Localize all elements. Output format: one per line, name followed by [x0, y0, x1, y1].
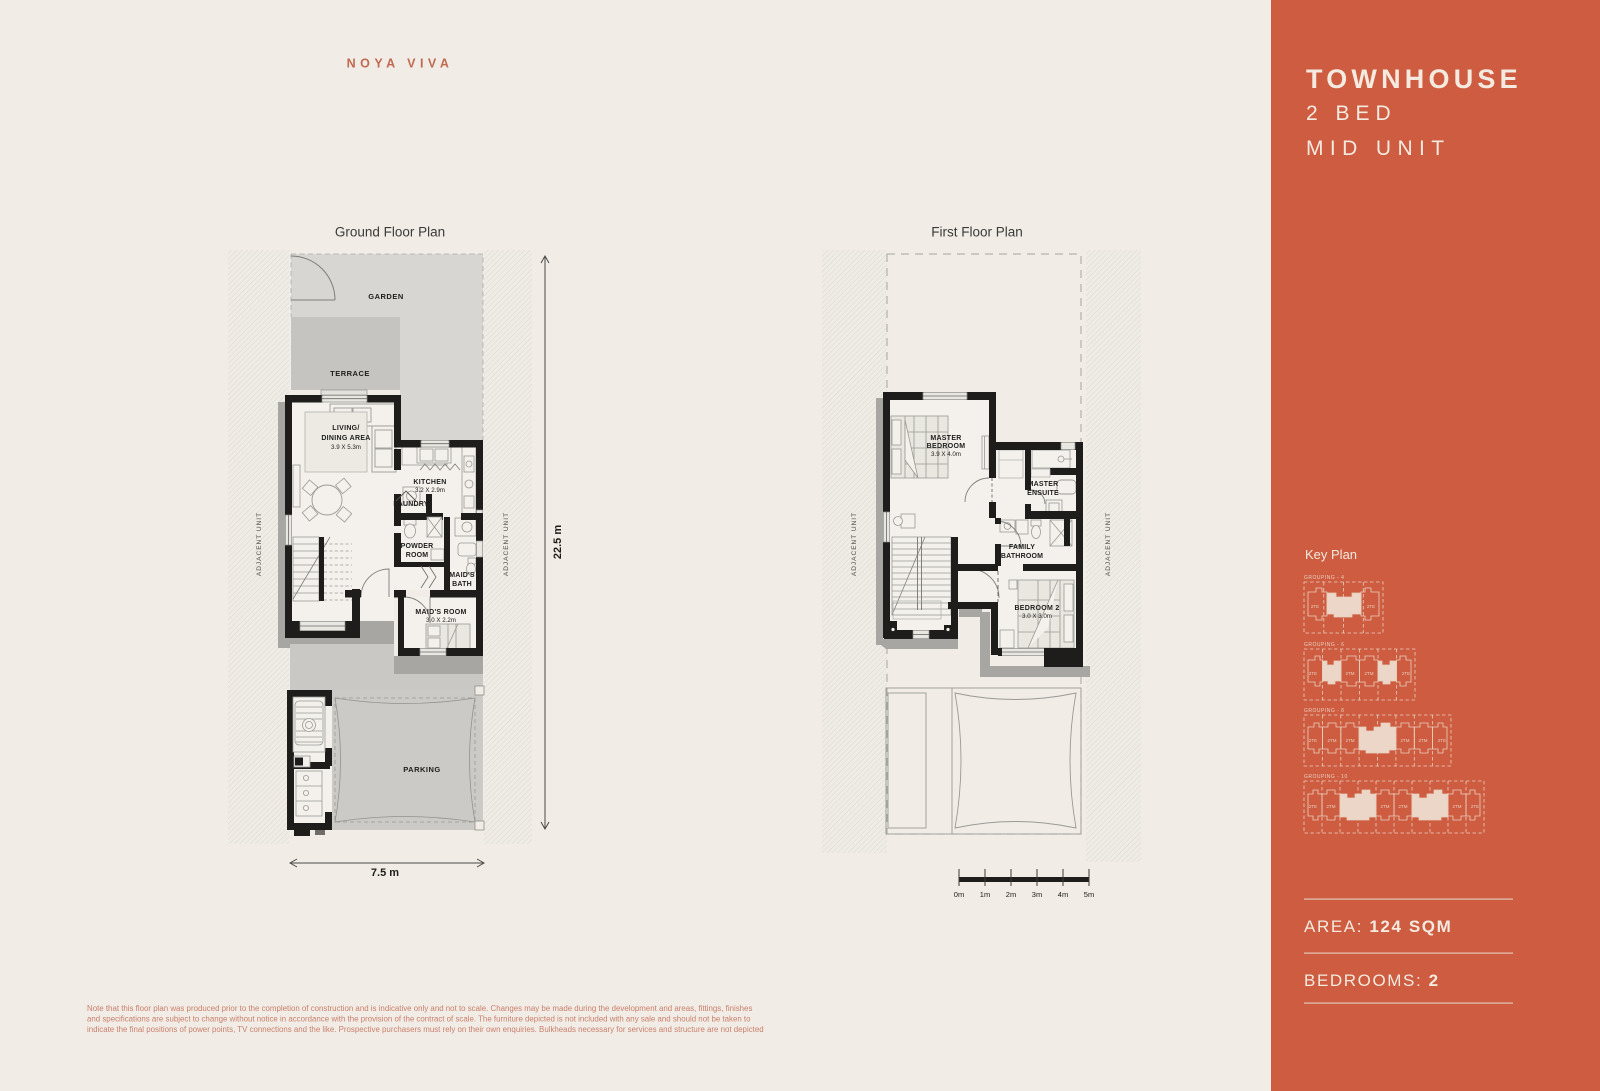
svg-text:3.9 X 5.3m: 3.9 X 5.3m: [331, 444, 361, 451]
svg-text:1m: 1m: [980, 890, 990, 899]
svg-text:TERRACE: TERRACE: [330, 369, 370, 378]
svg-text:Ground Floor Plan: Ground Floor Plan: [335, 225, 445, 240]
svg-text:Key Plan: Key Plan: [1305, 547, 1357, 562]
svg-text:2TE: 2TE: [1438, 738, 1446, 743]
svg-text:5m: 5m: [1084, 890, 1094, 899]
svg-text:BATH: BATH: [452, 581, 472, 588]
svg-text:22.5 m: 22.5 m: [552, 525, 564, 559]
svg-text:3m: 3m: [1032, 890, 1042, 899]
svg-text:2m: 2m: [1006, 890, 1016, 899]
svg-text:MAID'S ROOM: MAID'S ROOM: [415, 609, 466, 616]
svg-text:BEDROOM 2: BEDROOM 2: [1014, 605, 1059, 612]
svg-text:ADJACENT UNIT: ADJACENT UNIT: [503, 512, 510, 576]
svg-text:POWDER: POWDER: [401, 543, 434, 550]
svg-text:GARDEN: GARDEN: [368, 292, 404, 301]
svg-text:4m: 4m: [1058, 890, 1068, 899]
svg-text:2TE: 2TE: [1309, 738, 1317, 743]
svg-text:GROUPING - 8: GROUPING - 8: [1304, 708, 1344, 714]
svg-text:ROOM: ROOM: [406, 552, 429, 559]
svg-text:BATHROOM: BATHROOM: [1001, 553, 1043, 560]
svg-text:2TM: 2TM: [1365, 671, 1374, 676]
svg-text:AREA: 124 SQM: AREA: 124 SQM: [1304, 917, 1452, 936]
svg-text:ADJACENT UNIT: ADJACENT UNIT: [256, 512, 263, 576]
svg-text:and specifications are subject: and specifications are subject to change…: [87, 1015, 751, 1024]
svg-text:MASTER: MASTER: [1028, 481, 1059, 488]
svg-text:ADJACENT UNIT: ADJACENT UNIT: [1105, 512, 1112, 576]
svg-text:GROUPING - 4: GROUPING - 4: [1304, 575, 1344, 581]
svg-text:MAID'S: MAID'S: [449, 572, 475, 579]
svg-text:DINING AREA: DINING AREA: [321, 435, 370, 442]
svg-text:2 BED: 2 BED: [1306, 102, 1397, 125]
svg-text:GROUPING - 6: GROUPING - 6: [1304, 642, 1344, 648]
svg-text:KITCHEN: KITCHEN: [413, 479, 446, 486]
svg-text:2TE: 2TE: [1402, 671, 1410, 676]
svg-text:3.2 X 2.9m: 3.2 X 2.9m: [415, 487, 445, 494]
svg-text:NOYA VIVA: NOYA VIVA: [347, 57, 454, 71]
svg-text:7.5 m: 7.5 m: [371, 867, 399, 879]
svg-text:LIVING/: LIVING/: [332, 425, 359, 432]
svg-text:2TE: 2TE: [1367, 604, 1375, 609]
svg-text:First Floor Plan: First Floor Plan: [931, 225, 1023, 240]
svg-text:Note that this floor plan was: Note that this floor plan was produced p…: [87, 1004, 752, 1013]
svg-text:ADJACENT UNIT: ADJACENT UNIT: [851, 512, 858, 576]
svg-text:2TE: 2TE: [1309, 671, 1317, 676]
svg-text:2TM: 2TM: [1327, 804, 1336, 809]
svg-text:2TE: 2TE: [1309, 804, 1317, 809]
svg-text:PARKING: PARKING: [403, 765, 441, 774]
svg-text:3.9 X 4.0m: 3.9 X 4.0m: [931, 451, 961, 458]
svg-text:MASTER: MASTER: [930, 435, 961, 442]
svg-text:indicate the final positions o: indicate the final positions of power po…: [87, 1025, 764, 1034]
svg-text:BEDROOM: BEDROOM: [927, 443, 966, 450]
svg-text:TOWNHOUSE: TOWNHOUSE: [1306, 64, 1522, 94]
svg-text:2TM: 2TM: [1328, 738, 1337, 743]
svg-text:2TM: 2TM: [1399, 804, 1408, 809]
svg-text:2TM: 2TM: [1453, 804, 1462, 809]
svg-text:2TM: 2TM: [1346, 671, 1355, 676]
svg-text:LAUNDRY: LAUNDRY: [393, 501, 428, 508]
svg-text:GROUPING - 10: GROUPING - 10: [1304, 774, 1348, 780]
svg-text:ENSUITE: ENSUITE: [1027, 490, 1059, 497]
svg-text:2TM: 2TM: [1401, 738, 1410, 743]
svg-text:0m: 0m: [954, 890, 964, 899]
svg-text:MID UNIT: MID UNIT: [1306, 137, 1451, 160]
svg-text:BEDROOMS: 2: BEDROOMS: 2: [1304, 971, 1440, 990]
svg-text:2TE: 2TE: [1471, 804, 1479, 809]
svg-text:2TM: 2TM: [1381, 804, 1390, 809]
svg-text:FAMILY: FAMILY: [1009, 544, 1035, 551]
svg-text:2TM: 2TM: [1346, 738, 1355, 743]
svg-text:3.0 X 2.2m: 3.0 X 2.2m: [426, 617, 456, 624]
svg-text:2TM: 2TM: [1419, 738, 1428, 743]
svg-text:2TE: 2TE: [1311, 604, 1319, 609]
svg-text:3.0 X 3.0m: 3.0 X 3.0m: [1022, 613, 1052, 620]
